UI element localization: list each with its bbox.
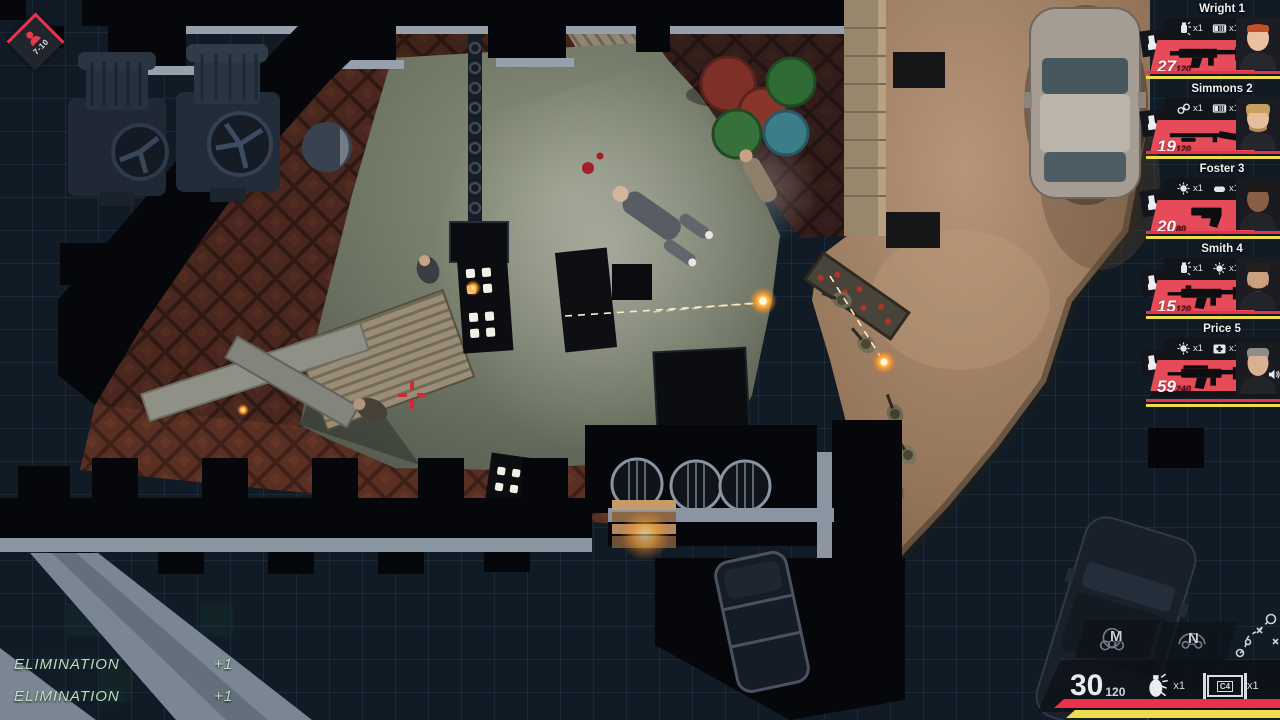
c4-slot[interactable]: C4 <box>1207 675 1243 697</box>
vitals-bars <box>1146 399 1280 407</box>
c4-count: x1 <box>1247 680 1259 692</box>
member-portrait <box>1236 178 1280 230</box>
card-table-1 <box>457 250 514 353</box>
member-portrait <box>1236 258 1280 310</box>
blood <box>597 153 604 160</box>
bottom-structures <box>585 420 902 565</box>
block <box>60 243 116 285</box>
gear-count: x1 <box>1193 343 1203 354</box>
handcuffs-icon <box>1176 101 1191 116</box>
slot-key-label: N <box>1188 630 1199 647</box>
table-2 <box>555 248 617 353</box>
active-health-bar <box>1054 699 1280 708</box>
squad-member-smith[interactable]: Smith 4 x1 x1 15120 <box>1140 240 1280 320</box>
squad-member-foster[interactable]: Foster 3 x1 x1 2080 <box>1140 160 1280 240</box>
car-parked <box>1024 5 1148 205</box>
speaker-icon <box>1268 368 1280 386</box>
gear-count: x1 <box>1193 103 1203 114</box>
member-portrait <box>1236 18 1280 70</box>
elimination-value: +1 <box>214 656 233 673</box>
member-name: Wright 1 <box>1170 3 1274 15</box>
stinger-grenade-icon <box>1212 261 1227 276</box>
squad-member-simmons[interactable]: Simmons 2 x1 x1 19120 <box>1140 80 1280 160</box>
squad-member-price[interactable]: Price 5 x1 x1 59240 <box>1140 320 1280 408</box>
flashbang-slot[interactable] <box>1147 673 1169 699</box>
blood <box>582 162 594 174</box>
slot-key-label: M <box>1110 628 1123 645</box>
gear-count: x1 <box>1193 183 1203 194</box>
vitals-bars <box>1146 231 1280 239</box>
squad-roster: Wright 1 x1 x1 27120 Simmons 2 <box>1140 0 1280 408</box>
elimination-label: Elimination <box>14 688 120 705</box>
score-feed: Elimination +1 Elimination +1 <box>14 656 264 720</box>
stone-wall <box>844 0 886 236</box>
stinger-grenade-icon <box>1176 341 1191 356</box>
muzzle-flash-core <box>759 297 767 305</box>
restraints-icon <box>1212 21 1227 36</box>
muzzle-flash-core <box>881 359 888 366</box>
flashbang-icon <box>1176 21 1191 36</box>
member-name: Smith 4 <box>1170 243 1274 255</box>
vitals-bars <box>1146 311 1280 319</box>
member-name: Price 5 <box>1170 323 1274 335</box>
member-portrait <box>1236 98 1280 150</box>
flashbang-icon <box>1176 261 1191 276</box>
game-world-viewport[interactable] <box>0 0 1280 720</box>
c4-label: C4 <box>1217 681 1233 692</box>
active-ammo-mag: 30 <box>1070 671 1103 701</box>
crate <box>612 264 652 300</box>
torch-flame <box>465 280 481 296</box>
ammo-reserve: 240 <box>1176 384 1191 394</box>
restraints-icon <box>1212 101 1227 116</box>
flashbang-icon <box>1147 673 1169 699</box>
medkit-icon <box>1212 341 1227 356</box>
gear-count: x1 <box>1193 263 1203 274</box>
elimination-label: Elimination <box>14 656 120 673</box>
elimination-entry: Elimination +1 <box>14 656 264 688</box>
door-wedge-icon <box>1212 181 1227 196</box>
block <box>1148 428 1204 468</box>
tactical-plan-icon[interactable] <box>1233 612 1280 658</box>
member-name: Foster 3 <box>1170 163 1274 175</box>
squad-member-wright[interactable]: Wright 1 x1 x1 27120 <box>1140 0 1280 80</box>
ammo-mag: 59 <box>1157 377 1176 396</box>
enemy-counter-badge: 7-10 <box>8 14 62 68</box>
flashbang-count: x1 <box>1173 680 1185 692</box>
elimination-entry: Elimination +1 <box>14 688 264 720</box>
gas-mask-slot[interactable]: M <box>1080 620 1154 658</box>
night-vision-slot[interactable]: N <box>1158 622 1232 660</box>
torch-flame <box>237 404 249 416</box>
active-armor-bar <box>1066 710 1280 718</box>
gear-count: x1 <box>1193 23 1203 34</box>
member-name: Simmons 2 <box>1170 83 1274 95</box>
vitals-bars <box>1146 71 1280 79</box>
elimination-value: +1 <box>214 688 233 705</box>
stinger-grenade-icon <box>1176 181 1191 196</box>
active-ammo-reserve: 120 <box>1105 685 1125 699</box>
vitals-bars <box>1146 151 1280 159</box>
